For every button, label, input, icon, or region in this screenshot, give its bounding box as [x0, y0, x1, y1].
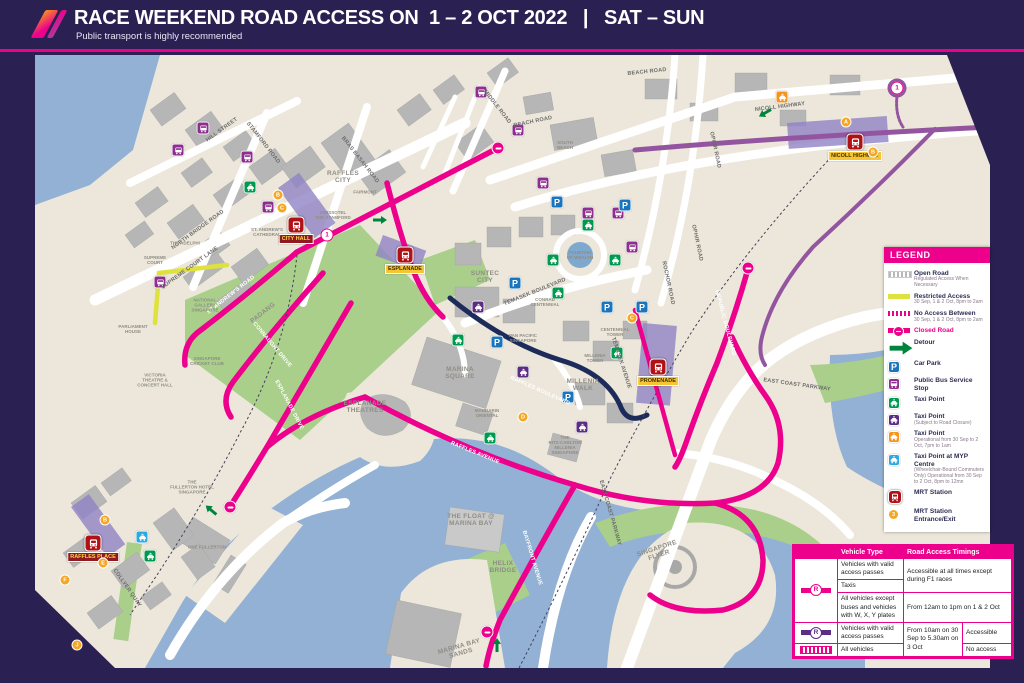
closed-road-legend-icon [888, 327, 914, 333]
taxi-orange-legend-icon [888, 430, 914, 443]
legend-item: MRT Station [888, 489, 986, 504]
building-label: FOUNTAIN OF WEALTH [567, 250, 593, 260]
legend-item-label: Car Park [914, 360, 941, 367]
mrt-station-label: PROMENADE [637, 376, 679, 386]
bus-icon [197, 122, 210, 135]
taxi-green-icon [244, 181, 257, 194]
page-title: RACE WEEKEND ROAD ACCESS ON 1 – 2 OCT 20… [74, 7, 704, 30]
road-label: TEMASEK AVENUE [610, 337, 632, 390]
mrt-exit-icon: A [841, 117, 852, 128]
carpark-icon: P [888, 361, 900, 373]
taxi-green-icon [888, 397, 900, 409]
access-cell: No access [963, 644, 1012, 657]
table-row: All vehicles No access [795, 644, 1012, 657]
legend-item-label: Restricted Access30 Sep, 1 & 2 Oct, 8pm … [914, 293, 983, 306]
legend-item-label: MRT Station Entrance/Exit [914, 508, 986, 523]
mrt-station-icon [288, 217, 305, 234]
header-divider [0, 49, 1024, 52]
road-label: SUPREME COURT LANE [161, 245, 220, 290]
bus-icon [241, 151, 254, 164]
legend-item: Taxi PointOperational from 30 Sep to 2 O… [888, 430, 986, 449]
page-subtitle: Public transport is highly recommended [76, 31, 242, 42]
vehicle-type-cell: Vehicles with valid access passes [838, 559, 904, 580]
purple-r-road-icon: R [795, 622, 838, 643]
road-label: CONNAUGHT DRIVE [251, 321, 292, 369]
road-label: BEACH ROAD [513, 115, 553, 129]
road-label: COLLYER QUAY [112, 568, 143, 608]
area-label: THE FLOAT @ MARINA BAY [447, 513, 494, 527]
table-row: R Vehicles with valid access passes Acce… [795, 559, 1012, 580]
legend-item-label: Taxi PointOperational from 30 Sep to 2 O… [914, 430, 986, 449]
road-access-timings-header: Road Access Timings [904, 547, 1012, 559]
taxi-green-icon [609, 254, 622, 267]
road-closed-icon [742, 262, 755, 275]
legend-item: Detour [888, 339, 986, 356]
mrt-station-label: RAFFLES PLACE [67, 552, 119, 562]
legend-items: Open RoadRegulated Access When Necessary… [884, 263, 990, 532]
mrt-exit-icon: B [273, 190, 284, 201]
building-label: THE ADELPHI [170, 241, 200, 246]
legend-item: PCar Park [888, 360, 986, 373]
taxi-green-legend-icon [888, 396, 914, 409]
table-row: R Vehicles with valid access passes From… [795, 622, 1012, 643]
route-marker-icon: 1 [321, 229, 334, 242]
legend-item-label: Open RoadRegulated Access When Necessary [914, 270, 986, 289]
carpark-icon: P [491, 336, 504, 349]
icon-column-header [795, 547, 838, 559]
legend-item: No Access Between30 Sep, 1 & 2 Oct, 8pm … [888, 310, 986, 323]
area-label: SINGAPORE FLYER [636, 539, 680, 565]
road-label: ESPLANADE DRIVE [273, 379, 304, 431]
mrt-legend-icon [888, 489, 914, 504]
legend-item-label: Taxi Point at MYP Centre(Wheelchair-Boun… [914, 453, 986, 485]
vehicle-access-table: Vehicle Type Road Access Timings R Vehic… [792, 544, 1014, 659]
road-label: MIDDLE ROAD [482, 89, 512, 125]
carpark-legend-icon: P [888, 360, 914, 373]
building-label: VICTORIA THEATRE & CONCERT HALL [137, 373, 173, 388]
legend-item-label: Taxi Point(Subject to Road Closure) [914, 413, 972, 426]
legend-item-label: No Access Between30 Sep, 1 & 2 Oct, 8pm … [914, 310, 983, 323]
mrt-station-icon [847, 134, 864, 151]
area-label: PADANG [249, 301, 277, 325]
legend-title: LEGEND [884, 247, 990, 263]
taxi-green-icon [484, 432, 497, 445]
area-label: SUNTEC CITY [471, 270, 500, 284]
building-label: SOUTH BEACH [557, 140, 573, 150]
header-bar: RACE WEEKEND ROAD ACCESS ON 1 – 2 OCT 20… [0, 0, 1024, 52]
area-label: MARINA BAY SANDS [437, 637, 483, 663]
building-label: CENTENNIAL TOWER [601, 327, 630, 337]
detour-legend-icon [888, 339, 914, 356]
area-label: HELIX BRIDGE [489, 560, 516, 574]
building-label: ONE FULLERTON [188, 545, 226, 550]
f1-event-logo [30, 8, 66, 40]
page: { "header": { "title": "RACE WEEKEND ROA… [0, 0, 1024, 683]
area-label: MARINA SQUARE [445, 366, 475, 380]
building-label: FAIRMONT [353, 190, 377, 195]
building-label: SINGAPORE CRICKET CLUB [190, 356, 224, 366]
road-closed-icon [492, 142, 505, 155]
legend-item: Taxi Point(Subject to Road Closure) [888, 413, 986, 426]
mrt-station-icon [397, 247, 414, 264]
taxi-blue-icon [136, 531, 149, 544]
taxi-orange-icon [888, 431, 900, 443]
exit-legend-icon: 3 [888, 508, 914, 520]
bus-icon [626, 241, 639, 254]
legend-item-label: MRT Station [914, 489, 952, 496]
vehicle-type-header: Vehicle Type [838, 547, 904, 559]
road-label: EAST COAST PARKWAY [598, 480, 622, 547]
detour-arrow-icon [202, 501, 221, 519]
building-label: MILLENIA TOWER [584, 353, 605, 363]
building-label: NATIONAL GALLERY SINGAPORE [191, 298, 218, 313]
taxi-blue-icon [888, 454, 900, 466]
timing-cell: From 10am on 30 Sep to 5.30am on 3 Oct [904, 622, 963, 656]
mrt-station-label: ESPLANADE [385, 264, 425, 274]
legend-panel: LEGEND Open RoadRegulated Access When Ne… [884, 247, 990, 532]
legend-item: Taxi Point [888, 396, 986, 409]
legend-item: 3MRT Station Entrance/Exit [888, 508, 986, 523]
legend-item-label: Closed Road [914, 327, 954, 334]
striped-road-icon [795, 644, 838, 657]
table-header-row: Vehicle Type Road Access Timings [795, 547, 1012, 559]
taxi-blue-legend-icon [888, 453, 914, 466]
taxi-purple-icon [576, 421, 589, 434]
legend-item: Closed Road [888, 327, 986, 334]
road-label: OPHIR ROAD [708, 131, 722, 169]
taxi-green-icon [452, 334, 465, 347]
taxi-green-icon [582, 219, 595, 232]
taxi-green-icon [144, 550, 157, 563]
area-label: ESPLANADE THEATRES [344, 400, 387, 414]
vehicle-type-cell: All vehicles [838, 644, 904, 657]
mrt-exit-icon: C [277, 203, 288, 214]
bus-icon [888, 378, 900, 390]
open-road-legend-icon [888, 270, 914, 278]
carpark-icon: P [636, 301, 649, 314]
mrt-exit-icon: B [868, 147, 879, 158]
pink-r-road-icon: R [795, 559, 838, 623]
no-access-legend-icon [888, 310, 914, 316]
road-label: HILL STREET [205, 117, 239, 144]
timing-cell: Accessible at all times except during F1… [904, 559, 1012, 593]
building-label: CONRAD CENTENNIAL [531, 297, 560, 307]
mrt-exit-icon: J [72, 640, 83, 651]
building-label: ST. ANDREW'S CATHEDRAL [251, 227, 283, 237]
building-label: THE FULLERTON HOTEL SINGAPORE [170, 480, 214, 495]
mrt-exit-icon: F [60, 575, 71, 586]
road-closed-icon [224, 501, 237, 514]
taxi-purple-icon [888, 414, 900, 426]
carpark-icon: P [509, 277, 522, 290]
mrt-exit-icon: E [98, 558, 109, 569]
vehicle-type-cell: All vehicles except buses and vehicles w… [838, 593, 904, 622]
road-label: BAYFRONT AVENUE [521, 530, 543, 586]
legend-item: Open RoadRegulated Access When Necessary [888, 270, 986, 289]
road-label: ROCHOR ROAD [660, 261, 675, 306]
legend-item: Public Bus Service Stop [888, 377, 986, 392]
taxi-purple-legend-icon [888, 413, 914, 426]
vehicle-type-cell: Taxis [838, 580, 904, 593]
mrt-exit-icon: B [100, 515, 111, 526]
timing-cell: From 12am to 1pm on 1 & 2 Oct [904, 593, 1012, 622]
legend-item: Restricted Access30 Sep, 1 & 2 Oct, 8pm … [888, 293, 986, 306]
area-label: RAFFLES CITY [327, 170, 359, 184]
legend-item-label: Detour [914, 339, 935, 346]
road-label: BEACH ROAD [627, 67, 667, 77]
building-label: PAN PACIFIC SINGAPORE [509, 333, 537, 343]
route-marker-icon: 1 [891, 82, 904, 95]
restricted-legend-icon [888, 293, 914, 299]
taxi-purple-icon [517, 366, 530, 379]
mrt-station-label: CITY HALL [279, 234, 314, 244]
building-label: THE RITZ-CARLTON MILLENIA SINGAPORE [548, 435, 581, 455]
carpark-icon: P [551, 196, 564, 209]
access-cell: Accessible [963, 622, 1012, 643]
road-label: OPHIR ROAD [690, 224, 704, 262]
legend-item-label: Public Bus Service Stop [914, 377, 986, 392]
bus-icon [537, 177, 550, 190]
taxi-orange-icon [776, 91, 789, 104]
taxi-purple-icon [472, 301, 485, 314]
building-label: MANDARIN ORIENTAL [475, 408, 500, 418]
vehicle-type-cell: Vehicles with valid access passes [838, 622, 904, 643]
mrt-exit-icon: D [518, 412, 529, 423]
bus-icon [172, 144, 185, 157]
area-label: MILLENIA WALK [566, 378, 599, 392]
mrt-station-icon [85, 535, 102, 552]
detour-arrow-icon [372, 215, 388, 225]
building-label: SUPREME COURT [144, 255, 166, 265]
building-label: SWISSOTEL THE STAMFORD [315, 210, 350, 220]
legend-item-label: Taxi Point [914, 396, 945, 403]
taxi-green-icon [547, 254, 560, 267]
mrt-exit-icon: C [627, 313, 638, 324]
road-label: EAST COAST PARKWAY [763, 377, 831, 392]
road-label: REPUBLIC BOULEVARD [713, 290, 736, 357]
building-label: PARLIAMENT HOUSE [118, 324, 147, 334]
mrt-station-icon [650, 359, 667, 376]
carpark-icon: P [601, 301, 614, 314]
bus-icon [262, 201, 275, 214]
bus-legend-icon [888, 377, 914, 390]
detour-arrow-icon [492, 637, 502, 653]
carpark-icon: P [619, 199, 632, 212]
legend-item: Taxi Point at MYP Centre(Wheelchair-Boun… [888, 453, 986, 485]
